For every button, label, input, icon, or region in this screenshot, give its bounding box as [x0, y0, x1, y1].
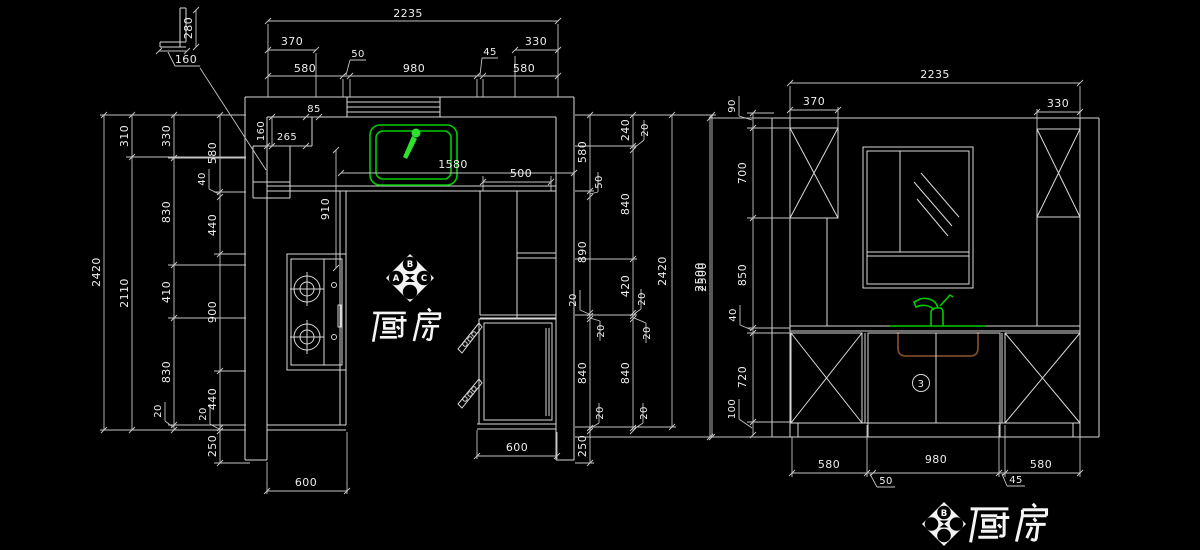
- fridge-handle: [546, 328, 549, 416]
- dim-label: 20: [639, 406, 650, 420]
- upper-cabinet-left: [790, 128, 838, 218]
- fridge-inner: [484, 323, 552, 420]
- hinge-hole: [468, 337, 472, 341]
- room-label-plan: 厨房: [373, 308, 440, 341]
- fridge-outer: [479, 319, 556, 424]
- cabinet-x-brace: [790, 128, 838, 218]
- mirror-cabinet: [863, 147, 973, 288]
- base-cabinet-left: [791, 333, 862, 423]
- dim-label: 2420: [90, 257, 103, 287]
- marker-circle-bottom: [403, 285, 417, 299]
- dim-label: 840: [619, 362, 632, 384]
- glyph-fang: [414, 308, 440, 341]
- dim-label: 2420: [656, 256, 669, 286]
- dim-label: 850: [736, 264, 749, 286]
- marker-letter: A: [393, 274, 400, 284]
- dim-label: 500: [510, 167, 532, 180]
- marker-circle-left: [925, 517, 939, 531]
- elevation-dim-leaders: [739, 96, 1025, 487]
- elevation-view: 3 2235 370 330 90 700 850 40 720 100 250…: [693, 68, 1099, 546]
- burner-1-crosshair: [290, 272, 324, 306]
- faucet-elevation: [890, 295, 985, 326]
- toe-kick: [790, 423, 1080, 437]
- hob-knob-1: [332, 283, 337, 288]
- dim-label: 720: [736, 366, 749, 388]
- dim-label: 600: [295, 476, 317, 489]
- plan-dim-ticks: [101, 7, 715, 494]
- cabinet-box: [868, 333, 1000, 423]
- glass-reflection-lines: [914, 173, 959, 236]
- dim-label: 330: [1047, 97, 1069, 110]
- room-label-elevation: 厨房: [971, 504, 1047, 543]
- glyph-chu: [373, 313, 406, 342]
- dim-label: 85: [307, 104, 321, 115]
- window-mullions: [347, 102, 440, 112]
- fridge: [458, 319, 556, 429]
- faucet-lever: [940, 295, 953, 306]
- dim-label: 330: [525, 35, 547, 48]
- dim-label: 890: [576, 241, 589, 263]
- fridge-door-flap-2: [458, 379, 482, 408]
- dim-label: 2235: [393, 7, 423, 20]
- right-cabinets: [480, 191, 556, 318]
- dim-label: 330: [160, 125, 173, 147]
- dim-label: 2110: [118, 278, 131, 308]
- dim-label: 20: [568, 293, 579, 307]
- dim-label: 265: [277, 132, 297, 143]
- marker-letter: B: [941, 509, 947, 519]
- dim-label: 600: [506, 441, 528, 454]
- callout-number: 3: [918, 379, 925, 390]
- plan-dim-lines: [104, 10, 712, 491]
- dim-label: 440: [206, 388, 219, 410]
- kitchen-cad-drawing: B A C 厨房 2235 370 330 580 50 980 45: [0, 0, 1200, 550]
- hinge-hole: [472, 332, 476, 336]
- dim-label: 90: [727, 99, 738, 113]
- gas-hob: [287, 254, 346, 370]
- dim-label: 310: [118, 125, 131, 147]
- dim-label: 160: [175, 53, 197, 66]
- fridge-base-lines: [477, 424, 556, 429]
- dim-label: 20: [595, 406, 606, 420]
- dim-label: 980: [403, 62, 425, 75]
- faucet-base-icon: [412, 129, 421, 138]
- burner-2-crosshair: [290, 320, 324, 354]
- dim-label: 50: [879, 476, 893, 487]
- window: [347, 97, 440, 117]
- upper-cabinet-right: [1037, 129, 1080, 217]
- plan-view: B A C 厨房 2235 370 330 580 50 980 45: [90, 7, 716, 494]
- hob-outer: [287, 254, 346, 370]
- base-cabinet-center: 3: [865, 333, 1002, 423]
- cabinet-x-brace: [1005, 333, 1080, 423]
- dim-label: 830: [160, 361, 173, 383]
- dim-label: 900: [206, 301, 219, 323]
- dim-label: 980: [925, 453, 947, 466]
- dim-label: 420: [619, 275, 632, 297]
- elevation-dim-lines: [710, 83, 1080, 473]
- dim-label: 370: [281, 35, 303, 48]
- dim-label: 20: [596, 324, 607, 338]
- dim-label: 20: [642, 326, 653, 340]
- dim-label: 840: [619, 193, 632, 215]
- dim-label: 580: [818, 458, 840, 471]
- dim-label: 830: [160, 201, 173, 223]
- dim-label: 1580: [438, 158, 468, 171]
- dim-label: 40: [728, 308, 739, 322]
- marker-letter: B: [407, 260, 413, 270]
- dim-label: 580: [513, 62, 535, 75]
- dim-label: 240: [619, 119, 632, 141]
- dim-label: 700: [736, 162, 749, 184]
- marker-letter: C: [421, 274, 427, 284]
- base-cabinet-right: [1005, 333, 1080, 423]
- dim-label: 45: [483, 47, 497, 58]
- glyph-fang: [1016, 504, 1046, 542]
- hinge-hole: [472, 387, 476, 391]
- dim-label: 20: [198, 407, 209, 421]
- glyph-chu: [971, 509, 1010, 543]
- dim-label: 580: [1030, 458, 1052, 471]
- cabinet-x-brace: [791, 333, 862, 423]
- dim-label: 440: [206, 214, 219, 236]
- sink-bowl-outline: [898, 331, 978, 356]
- dim-label: 50: [351, 49, 365, 60]
- dim-label: 250: [206, 435, 219, 457]
- hinge-hole: [463, 397, 467, 401]
- dim-label: 580: [576, 141, 589, 163]
- dim-label: 370: [803, 95, 825, 108]
- sink-plan: [370, 125, 457, 185]
- dim-label: 580: [294, 62, 316, 75]
- dim-label: 410: [160, 281, 173, 303]
- dim-label: 2235: [920, 68, 950, 81]
- view-marker-elevation: B: [922, 502, 966, 546]
- elevation-extension-lines: [710, 86, 1080, 477]
- cabinet-x-brace: [1037, 129, 1080, 217]
- dim-label: 20: [637, 292, 648, 306]
- cad-drawing-canvas: B A C 厨房 2235 370 330 580 50 980 45: [0, 0, 1200, 550]
- marker-circle-bottom: [937, 529, 951, 543]
- dim-label: 910: [319, 198, 332, 220]
- hinge-hole: [463, 342, 467, 346]
- dim-label: 160: [256, 121, 267, 141]
- view-marker-plan: B A C: [386, 254, 434, 302]
- dim-label: 2500: [693, 262, 706, 292]
- mirror-frame-inner: [867, 151, 969, 284]
- cabinet-doors: [865, 333, 1002, 423]
- dim-label: 580: [206, 142, 219, 164]
- hob-knob-2: [332, 335, 337, 340]
- elevation-dim-ticks: [707, 80, 1083, 476]
- dim-label: 280: [182, 17, 195, 39]
- faucet-handle-icon: [403, 136, 417, 159]
- hob-inner: [291, 259, 342, 365]
- dim-label: 250: [576, 435, 589, 457]
- fridge-door-flap-1: [458, 323, 482, 353]
- dim-label: 20: [640, 123, 651, 137]
- dim-label: 840: [576, 362, 589, 384]
- faucet-body: [931, 308, 943, 326]
- mirror-frame-outer: [863, 147, 973, 288]
- dim-label: 40: [197, 172, 208, 186]
- mirror-divisions: [867, 151, 969, 256]
- dim-label: 50: [594, 175, 605, 189]
- dim-label: 20: [153, 404, 164, 418]
- hinge-hole: [468, 392, 472, 396]
- counter-edges: [267, 186, 556, 430]
- dim-label: 45: [1009, 475, 1023, 486]
- dim-label: 100: [727, 399, 738, 419]
- marker-circle-right: [950, 517, 964, 531]
